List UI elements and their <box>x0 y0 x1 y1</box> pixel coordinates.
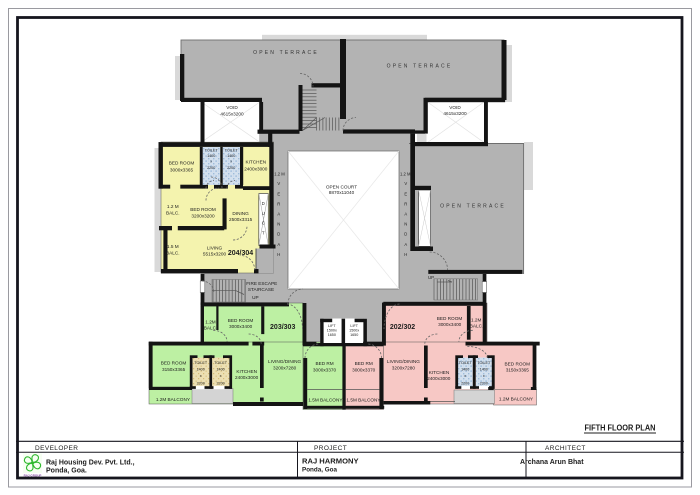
svg-text:BED ROOM: BED ROOM <box>161 361 187 366</box>
svg-text:U: U <box>262 211 265 216</box>
svg-text:2200: 2200 <box>216 382 224 386</box>
svg-text:N: N <box>404 222 407 227</box>
svg-text:VOID: VOID <box>226 105 238 110</box>
svg-text:1.2M BALCONY: 1.2M BALCONY <box>499 397 534 402</box>
svg-text:TOILET: TOILET <box>194 361 208 365</box>
svg-text:A: A <box>404 242 407 247</box>
svg-text:1500x: 1500x <box>349 329 359 333</box>
svg-text:BED ROOM: BED ROOM <box>228 318 254 323</box>
svg-text:TOILET: TOILET <box>225 149 239 153</box>
svg-text:DEVELOPER: DEVELOPER <box>35 445 78 452</box>
svg-text:TOILET: TOILET <box>214 361 228 365</box>
svg-text:3000x3400: 3000x3400 <box>438 322 462 327</box>
svg-text:BALC.: BALC. <box>166 210 180 215</box>
svg-text:OPEN TERRACE: OPEN TERRACE <box>440 204 506 210</box>
svg-text:V: V <box>277 181 280 186</box>
svg-text:BED ROOM: BED ROOM <box>505 362 531 367</box>
svg-text:1500x: 1500x <box>327 329 337 333</box>
svg-text:OPEN TERRACE: OPEN TERRACE <box>387 63 453 69</box>
svg-text:T: T <box>262 230 265 235</box>
svg-text:1.2 M: 1.2 M <box>400 172 411 177</box>
svg-text:1.2M: 1.2M <box>471 317 482 322</box>
svg-text:1400: 1400 <box>480 368 488 372</box>
svg-text:1.2 M: 1.2 M <box>167 204 179 209</box>
svg-text:1400: 1400 <box>197 368 205 372</box>
svg-text:BALC.: BALC. <box>204 326 218 331</box>
svg-text:x: x <box>464 374 466 378</box>
svg-text:TOILET: TOILET <box>477 361 491 365</box>
svg-text:3150x3365: 3150x3365 <box>162 367 186 372</box>
svg-text:R: R <box>277 201 280 206</box>
svg-text:BED RM: BED RM <box>315 361 333 366</box>
svg-text:BED ROOM: BED ROOM <box>437 316 463 321</box>
svg-text:KITCHEN: KITCHEN <box>246 159 267 164</box>
svg-text:2200: 2200 <box>227 166 235 170</box>
svg-text:TOILET: TOILET <box>459 361 473 365</box>
svg-text:x: x <box>210 160 212 164</box>
svg-text:x: x <box>230 160 232 164</box>
svg-text:KITCHEN: KITCHEN <box>236 369 257 374</box>
svg-text:204/304: 204/304 <box>228 250 253 257</box>
svg-text:2200: 2200 <box>480 382 488 386</box>
svg-text:202/302: 202/302 <box>390 324 415 331</box>
svg-text:UP: UP <box>428 275 434 280</box>
svg-text:1.5 M: 1.5 M <box>167 244 179 249</box>
svg-text:FIFTH FLOOR PLAN: FIFTH FLOOR PLAN <box>585 424 656 433</box>
svg-text:1400: 1400 <box>216 368 224 372</box>
svg-text:1400: 1400 <box>227 154 235 158</box>
svg-text:x: x <box>483 374 485 378</box>
svg-text:VOID: VOID <box>449 105 461 110</box>
svg-text:Ponda, Goa: Ponda, Goa <box>302 466 337 473</box>
svg-text:Archana Arun Bhat: Archana Arun Bhat <box>520 459 584 466</box>
svg-text:3150x3365: 3150x3365 <box>506 368 530 373</box>
svg-text:3200x7280: 3200x7280 <box>273 366 297 371</box>
svg-text:2500x3315: 2500x3315 <box>229 217 253 222</box>
svg-text:V: V <box>404 181 407 186</box>
svg-text:1.2 M: 1.2 M <box>274 172 285 177</box>
svg-text:Ponda, Goa.: Ponda, Goa. <box>46 468 87 475</box>
svg-text:ARCHITECT: ARCHITECT <box>545 445 586 452</box>
svg-text:OPEN TERRACE: OPEN TERRACE <box>253 50 319 56</box>
svg-text:R: R <box>404 201 407 206</box>
svg-text:3200x3200: 3200x3200 <box>191 214 215 219</box>
svg-text:4615x3200: 4615x3200 <box>220 111 244 116</box>
svg-text:RAJ HARMONY: RAJ HARMONY <box>302 456 359 465</box>
svg-text:BED ROOM: BED ROOM <box>190 207 216 212</box>
svg-text:FIRE ESCAPE: FIRE ESCAPE <box>246 281 277 286</box>
svg-text:RAJ GROUP: RAJ GROUP <box>24 473 42 477</box>
svg-text:x: x <box>220 374 222 378</box>
svg-text:A: A <box>277 212 280 217</box>
svg-text:OPEN COURT: OPEN COURT <box>326 184 357 189</box>
svg-text:D: D <box>262 201 265 206</box>
svg-text:1.5M BALCONY: 1.5M BALCONY <box>308 398 343 403</box>
svg-text:A: A <box>277 242 280 247</box>
svg-text:3200x7280: 3200x7280 <box>392 366 416 371</box>
svg-text:PROJECT: PROJECT <box>314 445 347 452</box>
svg-text:TOILET: TOILET <box>205 149 219 153</box>
svg-text:1650: 1650 <box>328 333 336 337</box>
svg-text:1400: 1400 <box>207 154 215 158</box>
svg-text:2400x3000: 2400x3000 <box>427 376 451 381</box>
svg-text:3000x3370: 3000x3370 <box>352 368 376 373</box>
svg-text:E: E <box>404 191 407 196</box>
svg-text:LIVING/DINING: LIVING/DINING <box>268 359 301 364</box>
svg-text:203/303: 203/303 <box>270 324 295 331</box>
svg-text:N: N <box>277 222 280 227</box>
svg-text:x: x <box>200 374 202 378</box>
svg-text:D: D <box>277 232 280 237</box>
svg-text:5515x3200: 5515x3200 <box>203 252 227 257</box>
svg-text:KITCHEN: KITCHEN <box>429 370 450 375</box>
svg-text:2400x3000: 2400x3000 <box>244 166 268 171</box>
svg-text:LIFT: LIFT <box>328 324 336 328</box>
svg-text:1.2M BALCONY: 1.2M BALCONY <box>156 397 191 402</box>
svg-text:DINING: DINING <box>232 211 249 216</box>
svg-text:3000x3400: 3000x3400 <box>229 324 253 329</box>
svg-text:8870x11040: 8870x11040 <box>329 190 355 195</box>
svg-text:BALC.: BALC. <box>166 251 180 256</box>
svg-text:H: H <box>277 252 280 257</box>
svg-text:BALC.: BALC. <box>470 323 484 328</box>
svg-text:1400: 1400 <box>461 368 469 372</box>
svg-text:2200: 2200 <box>207 166 215 170</box>
svg-text:E: E <box>277 191 280 196</box>
svg-text:STAIRCASE: STAIRCASE <box>248 287 274 292</box>
svg-text:A: A <box>404 212 407 217</box>
svg-text:C: C <box>262 221 265 226</box>
svg-text:1.5M BALCONY: 1.5M BALCONY <box>346 398 381 403</box>
svg-text:3000x3370: 3000x3370 <box>313 368 337 373</box>
svg-text:1650: 1650 <box>350 333 358 337</box>
svg-text:2400x3000: 2400x3000 <box>235 375 259 380</box>
svg-text:3000x3365: 3000x3365 <box>170 167 194 172</box>
svg-text:1.2M: 1.2M <box>205 320 216 325</box>
svg-text:UP: UP <box>252 295 259 300</box>
svg-text:BED ROOM: BED ROOM <box>169 160 195 165</box>
svg-text:LIVING: LIVING <box>207 246 223 251</box>
svg-text:Raj Housing Dev. Pvt. Ltd.,: Raj Housing Dev. Pvt. Ltd., <box>46 459 135 466</box>
svg-text:D: D <box>404 232 407 237</box>
svg-text:H: H <box>404 252 407 257</box>
svg-text:2200: 2200 <box>461 382 469 386</box>
svg-text:4615x3200: 4615x3200 <box>443 111 467 116</box>
svg-text:BED RM: BED RM <box>355 361 373 366</box>
svg-text:LIVING/DINING: LIVING/DINING <box>387 359 420 364</box>
svg-text:LIFT: LIFT <box>350 324 358 328</box>
svg-text:2200: 2200 <box>197 382 205 386</box>
